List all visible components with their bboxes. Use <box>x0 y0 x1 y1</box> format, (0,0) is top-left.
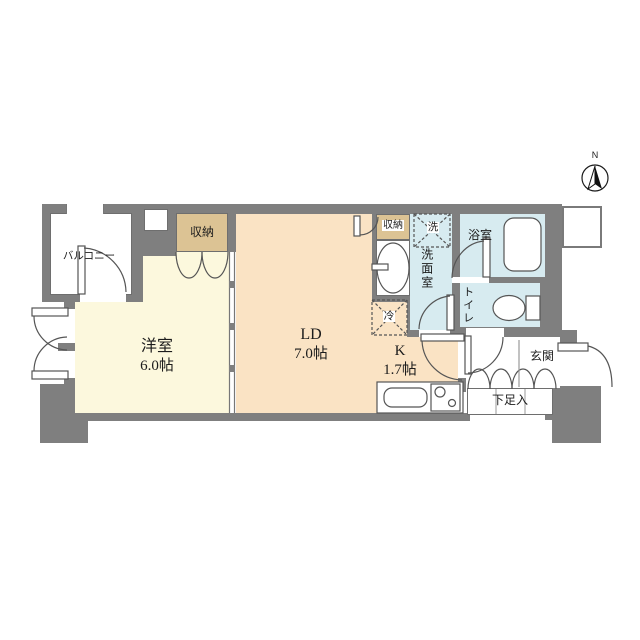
closet-bedroom-label: 収納 <box>176 226 228 240</box>
shoe-cabinet-label: 下足入 <box>467 394 553 408</box>
wall-balcony-left <box>42 204 50 302</box>
wall-bottom <box>86 413 470 421</box>
compass-north-label: N <box>560 150 630 160</box>
bathroom-area <box>460 214 545 277</box>
balcony-label: バルコニー <box>53 251 125 263</box>
washbasin-nook <box>376 240 410 296</box>
kitchen-size: 1.7帖 <box>360 362 440 379</box>
living-dining-area <box>236 214 372 413</box>
bathroom-label: 浴室 <box>461 229 499 243</box>
washroom-door-opening <box>419 330 450 337</box>
wall-hall-stub <box>458 378 466 392</box>
floor-plan: N バルコニー 洋室 6.0帖 LD 7.0帖 K 1.7帖 収納 収納 洗 冷… <box>0 0 640 640</box>
toilet-label: トイレ <box>461 286 474 325</box>
partition-track <box>229 252 236 413</box>
washroom-label: 洗面室 <box>419 248 433 290</box>
west-window-opening-1 <box>62 309 75 343</box>
living-dining-size: 7.0帖 <box>271 346 351 363</box>
balcony-window-opening <box>66 204 104 214</box>
western-room-size: 6.0帖 <box>117 358 197 375</box>
west-window-opening-2 <box>62 351 75 378</box>
entrance-label: 玄関 <box>526 350 558 364</box>
wall-niche <box>144 209 168 231</box>
wall-closet-right <box>228 204 236 256</box>
fridge-space-label: 冷 <box>376 311 402 323</box>
entry-door-opening <box>556 344 570 386</box>
living-dining-label: LD <box>271 326 351 344</box>
wall-washroom-bottom-a <box>407 330 419 337</box>
kitchen-label: K <box>360 343 440 360</box>
pipe-space <box>562 206 602 248</box>
wall-window-stub <box>58 343 75 351</box>
wall-right <box>545 204 562 340</box>
entry-door-arc <box>588 346 612 387</box>
column-bottom-right <box>552 390 601 443</box>
wall-washroom-bath <box>452 213 460 337</box>
compass-icon <box>582 165 608 191</box>
western-room-label: 洋室 <box>117 338 197 356</box>
toilet-door-opening <box>466 328 504 337</box>
western-room-upper <box>143 256 229 302</box>
balcony-door-opening <box>80 294 126 302</box>
western-room-closet-strip <box>176 252 229 262</box>
bathroom-door-opening <box>452 277 489 283</box>
washer-space-label: 洗 <box>420 222 446 234</box>
closet-ld-label: 収納 <box>376 220 410 232</box>
